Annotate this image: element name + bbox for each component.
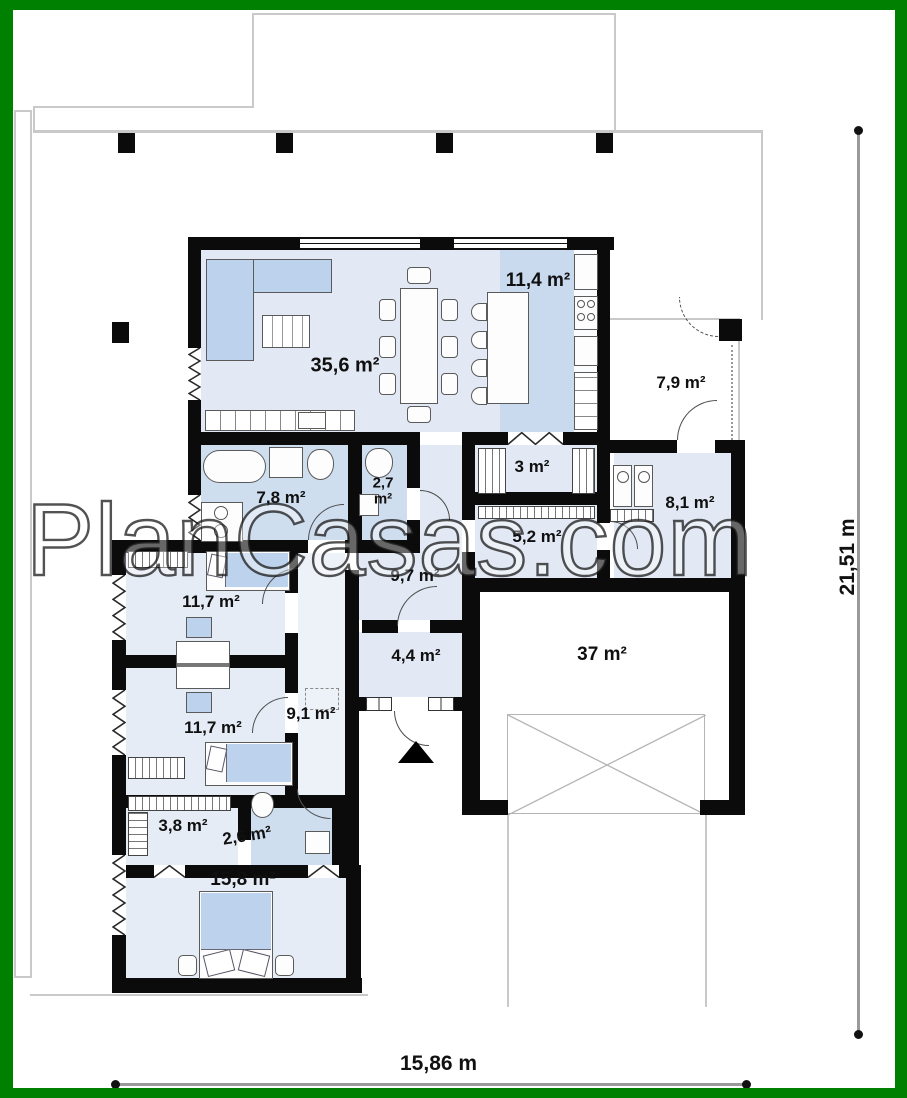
room-label-hall: 9,1 m² (286, 704, 335, 724)
wall (188, 237, 303, 250)
wall (729, 592, 745, 812)
terrace-outline-line (614, 13, 616, 132)
wall (228, 655, 285, 668)
wall (601, 440, 677, 453)
terrace-outline-line (252, 13, 616, 15)
folding-door-symbol (308, 865, 339, 878)
room-label-porch: 7,9 m² (656, 373, 705, 393)
dining-chair (379, 299, 396, 321)
window-zigzag-symbol (112, 855, 126, 935)
desk-chair (186, 692, 212, 713)
kitchen-sink (574, 336, 598, 366)
wardrobe (128, 796, 231, 811)
facade-window (300, 237, 420, 250)
green-photo-frame: 35,6 m² 11,4 m² 7,9 m² 3 m² 8,1 m² 5,2 m… (0, 0, 907, 1098)
room-label-closet: 3,8 m² (158, 816, 207, 836)
desk (176, 641, 230, 689)
dresser (128, 757, 185, 779)
bar-stool (471, 387, 487, 405)
terrace-outline-line (14, 110, 32, 112)
watermark: PlanCasas.com (26, 482, 753, 599)
nightstand (275, 955, 294, 976)
dining-chair (441, 373, 458, 395)
terrace-column (276, 133, 293, 153)
dining-table (400, 288, 438, 404)
dining-chair (441, 299, 458, 321)
terrace-column (436, 133, 453, 153)
terrace-outline-line (761, 130, 763, 320)
sidelight-window (428, 697, 454, 711)
wall (345, 570, 359, 865)
shower-tray (269, 447, 303, 478)
height-dimension-label: 21,51 m (836, 518, 860, 595)
width-dimension-label: 15,86 m (400, 1052, 477, 1076)
bar-stool (471, 359, 487, 377)
wall (112, 640, 126, 690)
terrace-outline-line (507, 815, 509, 1007)
burner (577, 300, 585, 308)
wall (597, 237, 610, 445)
wall (188, 432, 420, 445)
facade-window (454, 237, 567, 250)
pillow (206, 745, 228, 772)
wall (462, 800, 508, 815)
wall (188, 250, 201, 348)
bed (199, 891, 273, 979)
terrace-outline-line (14, 110, 16, 978)
room-label-pantry: 3 m² (515, 457, 550, 477)
wall (126, 655, 178, 668)
terrace-column (112, 322, 129, 343)
sofa-arm (206, 259, 254, 361)
floor-plan: 35,6 m² 11,4 m² 7,9 m² 3 m² 8,1 m² 5,2 m… (0, 0, 907, 1098)
terrace-column (719, 319, 742, 341)
nightstand (178, 955, 197, 976)
terrace-outline-line (33, 106, 254, 108)
kitchen-cabinet (574, 372, 598, 430)
burner (587, 313, 595, 321)
front-door-opening (392, 697, 428, 711)
pillow (238, 949, 270, 977)
entrance-arrow (398, 741, 434, 763)
burner (587, 300, 595, 308)
room-label-garage: 37 m² (577, 644, 627, 666)
terrace-outline-line (705, 815, 707, 1007)
door-swing-arc (677, 400, 717, 440)
bed-blanket (201, 893, 271, 950)
burner (577, 313, 585, 321)
wall (112, 978, 362, 993)
room-label-kitchen: 11,4 m² (506, 270, 570, 292)
terrace-column (118, 133, 135, 153)
room-label-living: 35,6 m² (311, 355, 380, 378)
wall (563, 432, 597, 445)
garage-door-cross (508, 715, 706, 815)
room-label-vestibule: 4,4 m² (391, 646, 440, 666)
rug (262, 315, 310, 348)
fridge (574, 254, 598, 290)
toilet (251, 792, 274, 818)
bar-stool (471, 331, 487, 349)
terrace-column (596, 133, 613, 153)
terrace-outline-line (30, 994, 368, 996)
dining-chair (379, 336, 396, 358)
dining-chair (407, 267, 431, 284)
porch-dotted-line (731, 345, 734, 440)
sidelight-window (366, 697, 392, 711)
dimension-dot (111, 1080, 120, 1089)
kitchen-counter (205, 410, 355, 431)
wall (332, 795, 345, 865)
wall (362, 620, 398, 633)
sink (305, 831, 330, 854)
folding-door-symbol (508, 432, 563, 445)
garage-door-area (507, 714, 705, 814)
wardrobe (128, 812, 148, 856)
dining-chair (379, 373, 396, 395)
dimension-dot (742, 1080, 751, 1089)
wall (420, 237, 454, 250)
pillow (203, 949, 235, 977)
folding-door-symbol (154, 865, 185, 878)
terrace-outline-line (14, 976, 32, 978)
wall (462, 432, 508, 445)
wall (462, 578, 480, 810)
dimension-dot (854, 126, 863, 135)
window-zigzag-symbol (188, 348, 201, 400)
room-label-master: 15,8 m² (210, 869, 275, 891)
window-zigzag-symbol (112, 690, 126, 755)
toilet (307, 449, 334, 480)
terrace-outline-line (33, 130, 763, 133)
cooktop (574, 296, 598, 330)
door-swing-arc (679, 297, 719, 337)
bed (205, 742, 293, 786)
bathtub (203, 450, 266, 483)
terrace-outline-line (33, 106, 35, 132)
counter-sink (298, 412, 326, 429)
kitchen-island (487, 292, 529, 404)
wall (285, 633, 298, 693)
bar-stool (471, 303, 487, 321)
terrace-outline-line (252, 13, 254, 108)
dining-chair (407, 406, 431, 423)
wall (700, 800, 745, 815)
desk-chair (186, 617, 212, 638)
wall (346, 865, 361, 993)
room-label-bedroom2: 11,7 m² (184, 718, 242, 738)
dining-chair (441, 336, 458, 358)
dimension-dot (854, 1030, 863, 1039)
bed-blanket (226, 744, 291, 782)
width-dimension-line (115, 1083, 747, 1086)
